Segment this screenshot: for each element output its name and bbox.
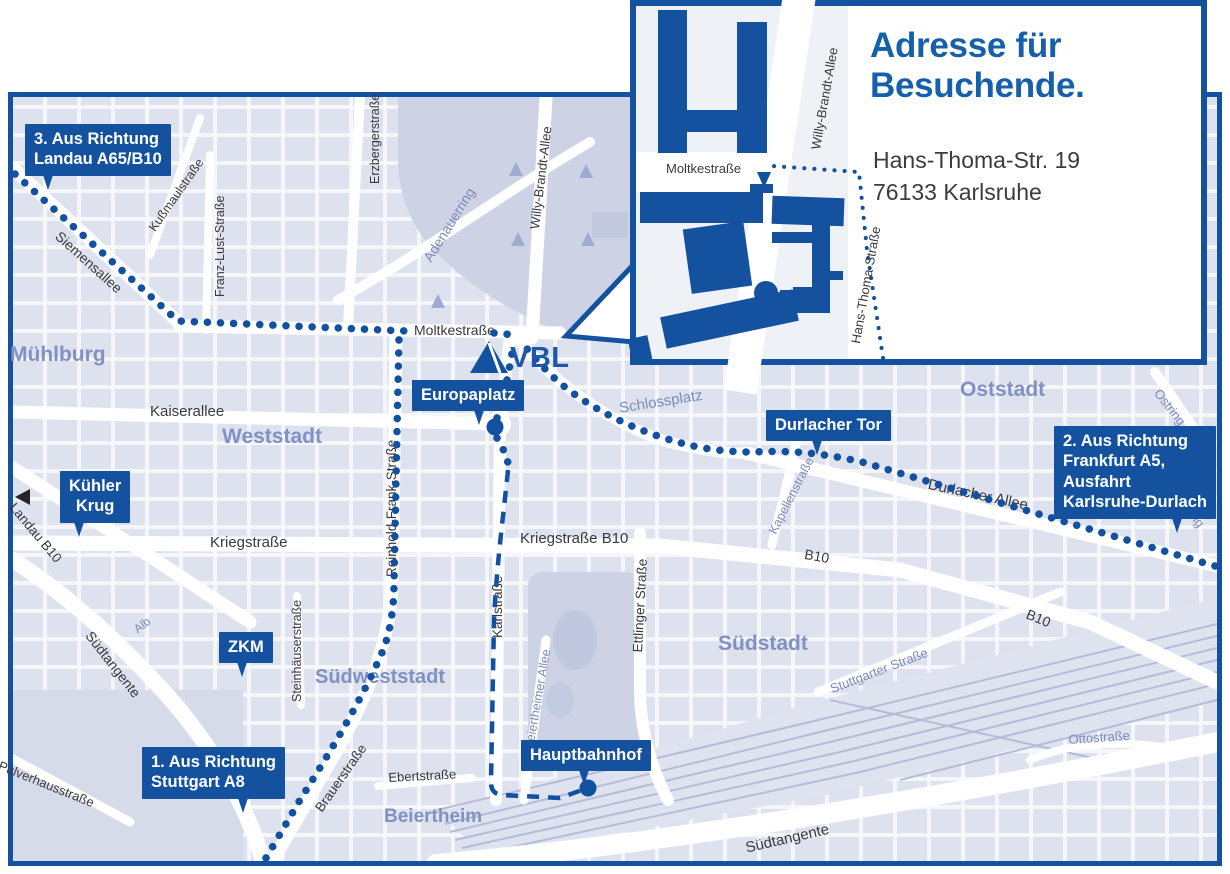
inset-address: Hans-Thoma-Str. 19 76133 Karlsruhe <box>873 144 1080 208</box>
city-map-page: Siemensallee Kußmaulstraße Franz-Lust-St… <box>0 0 1230 874</box>
inset-title: Adresse für Besuchende. <box>870 26 1085 106</box>
inset-arrow-down-icon <box>757 172 771 188</box>
inset-street-label-moltkestrasse: Moltkestraße <box>666 161 741 176</box>
inset-detail-panel: Moltkestraße Willy-Brandt-Allee Hans-Tho… <box>630 0 1207 365</box>
